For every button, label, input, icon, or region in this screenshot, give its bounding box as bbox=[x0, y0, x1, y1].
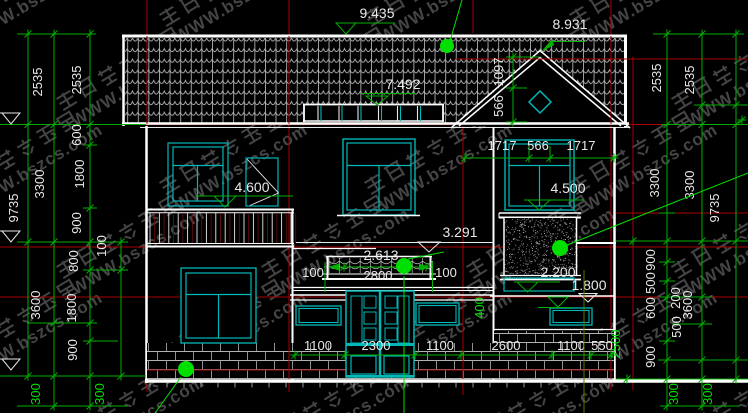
svg-text:3.291: 3.291 bbox=[442, 224, 477, 240]
svg-text:4.600: 4.600 bbox=[234, 179, 269, 195]
svg-text:1800: 1800 bbox=[64, 294, 79, 323]
svg-text:2535: 2535 bbox=[30, 68, 45, 97]
svg-text:1800: 1800 bbox=[72, 160, 87, 189]
svg-text:566: 566 bbox=[527, 138, 549, 153]
svg-text:3600: 3600 bbox=[680, 291, 695, 320]
svg-text:550: 550 bbox=[591, 338, 613, 353]
svg-text:500: 500 bbox=[669, 316, 684, 338]
svg-text:9735: 9735 bbox=[707, 194, 722, 223]
svg-text:100: 100 bbox=[302, 265, 324, 280]
svg-text:2300: 2300 bbox=[362, 338, 391, 353]
svg-text:3300: 3300 bbox=[647, 169, 662, 198]
svg-text:1717: 1717 bbox=[567, 138, 596, 153]
svg-text:8.931: 8.931 bbox=[552, 16, 587, 32]
svg-text:2.200: 2.200 bbox=[540, 264, 575, 280]
svg-text:100: 100 bbox=[94, 235, 109, 257]
svg-text:2800: 2800 bbox=[364, 268, 393, 283]
svg-text:3600: 3600 bbox=[28, 291, 43, 320]
svg-text:100: 100 bbox=[435, 265, 457, 280]
svg-text:600: 600 bbox=[643, 297, 658, 319]
svg-text:3300: 3300 bbox=[32, 170, 47, 199]
svg-text:900: 900 bbox=[643, 249, 658, 271]
svg-text:400: 400 bbox=[472, 297, 487, 319]
svg-text:7.492: 7.492 bbox=[385, 76, 420, 92]
svg-text:1100: 1100 bbox=[557, 338, 585, 353]
svg-text:2535: 2535 bbox=[69, 66, 84, 95]
svg-text:1.800: 1.800 bbox=[571, 277, 606, 293]
svg-text:2535: 2535 bbox=[682, 66, 697, 95]
svg-text:3300: 3300 bbox=[682, 171, 697, 200]
svg-text:9.435: 9.435 bbox=[359, 5, 394, 21]
svg-text:2.613: 2.613 bbox=[363, 247, 398, 263]
svg-text:2600: 2600 bbox=[492, 338, 521, 353]
svg-text:1100: 1100 bbox=[426, 338, 454, 353]
svg-text:4.500: 4.500 bbox=[550, 180, 585, 196]
svg-text:300: 300 bbox=[92, 383, 107, 405]
svg-text:300: 300 bbox=[666, 383, 681, 405]
svg-text:500: 500 bbox=[643, 272, 658, 294]
svg-text:9735: 9735 bbox=[6, 194, 21, 223]
svg-text:900: 900 bbox=[65, 339, 80, 361]
svg-text:900: 900 bbox=[643, 346, 658, 368]
svg-text:1717: 1717 bbox=[488, 138, 517, 153]
svg-text:1097: 1097 bbox=[491, 58, 506, 87]
svg-text:800: 800 bbox=[66, 250, 81, 272]
svg-text:566: 566 bbox=[491, 95, 506, 117]
svg-text:300: 300 bbox=[700, 383, 715, 405]
svg-text:900: 900 bbox=[69, 212, 84, 234]
svg-text:600: 600 bbox=[69, 124, 84, 146]
svg-text:2535: 2535 bbox=[649, 64, 664, 93]
svg-text:300: 300 bbox=[28, 383, 43, 405]
svg-text:1100: 1100 bbox=[304, 338, 332, 353]
